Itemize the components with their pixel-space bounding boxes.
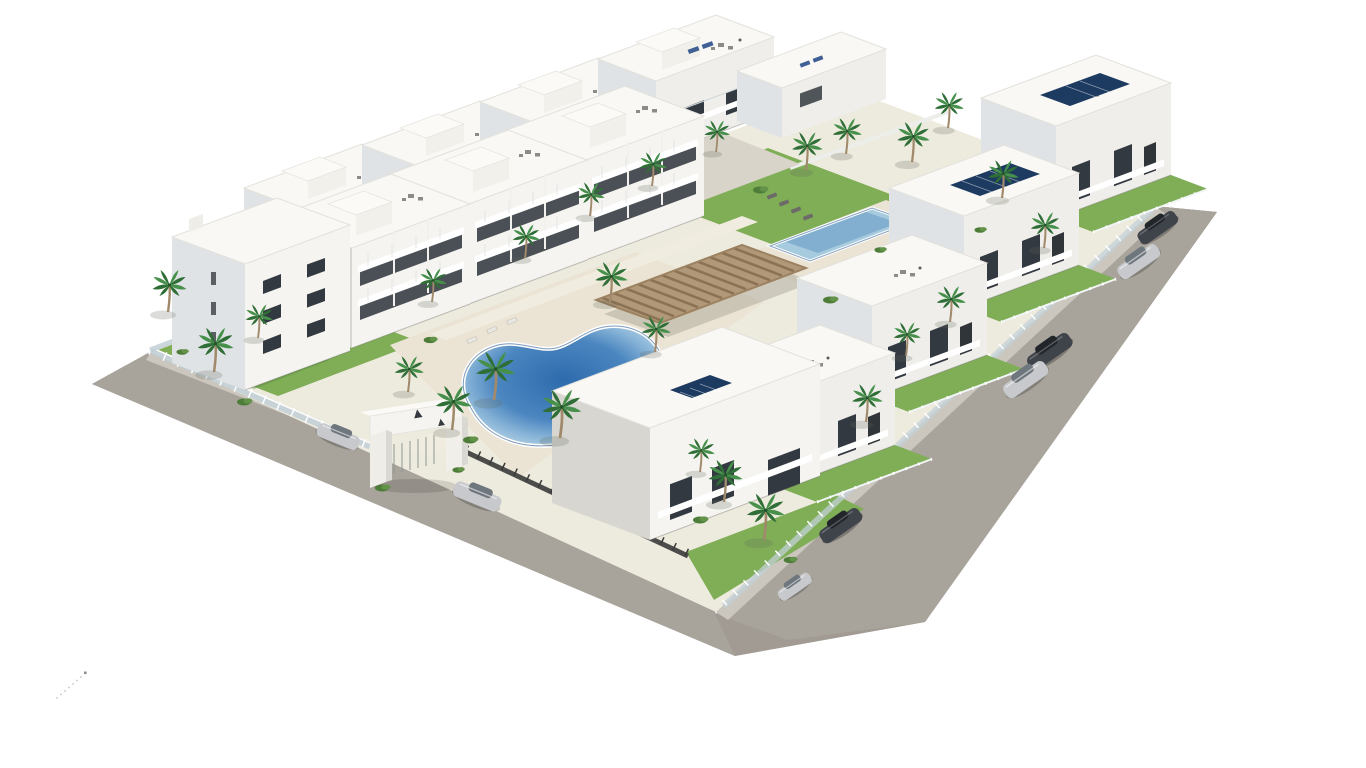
- render-canvas: ▲ ▲: [0, 0, 1366, 768]
- corner-tower: [172, 198, 350, 390]
- aerial-render: ▲ ▲: [0, 0, 1366, 768]
